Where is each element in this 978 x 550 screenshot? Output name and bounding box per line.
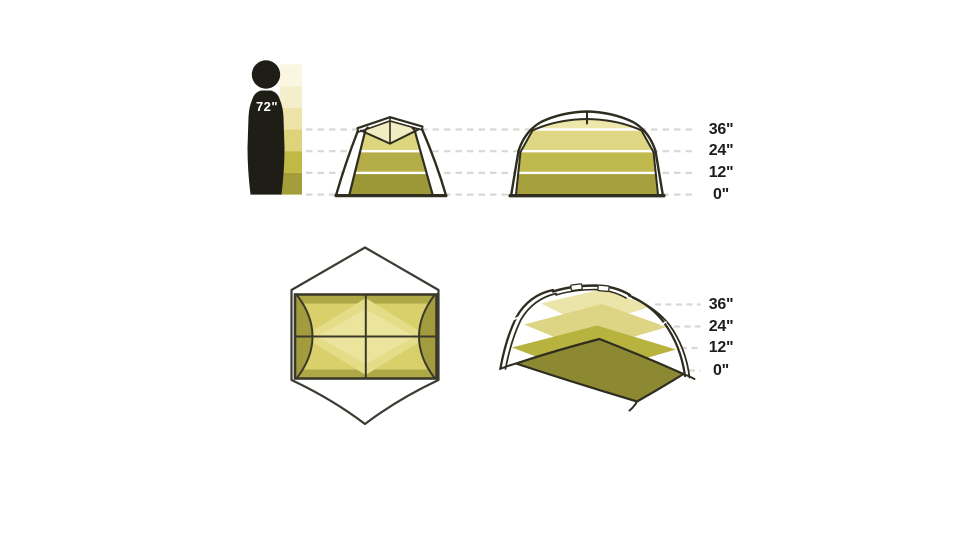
side-base-line [509,194,666,197]
tent-top-view [292,248,439,425]
tent-dimensions-diagram: 72" 36" 24" 12" 0" 36" 24" 12" 0" [0,0,978,550]
diagram-canvas [0,0,978,550]
height-label-bottom-0: 0" [699,363,743,379]
height-label-bottom-24: 24" [699,319,743,335]
front-base-line [335,194,448,197]
tent-side-elevation [508,112,666,198]
height-label-bottom-36: 36" [699,297,743,313]
stake-left [500,364,516,370]
tent-perspective-view [500,284,701,411]
height-label-top-24: 24" [699,143,743,159]
head [252,60,280,88]
human-silhouette [248,60,285,194]
height-label-top-0: 0" [699,187,743,203]
stake-front [630,402,638,411]
height-label-top-12: 12" [699,165,743,181]
tent-front-elevation [335,116,448,198]
human-height-label: 72" [252,100,282,113]
height-label-bottom-12: 12" [699,340,743,356]
height-label-top-36: 36" [699,122,743,138]
